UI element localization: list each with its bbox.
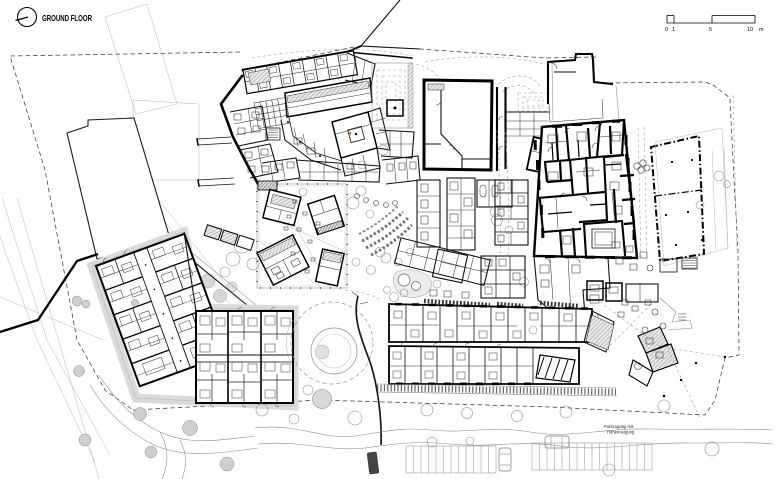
svg-text:10: 10 — [747, 27, 753, 33]
svg-text:Parkzugang mit: Parkzugang mit — [604, 424, 634, 429]
svg-text:Höhenneigung: Höhenneigung — [607, 430, 635, 435]
svg-text:5: 5 — [709, 27, 712, 33]
svg-text:m: m — [759, 27, 764, 33]
svg-text:0: 0 — [665, 27, 668, 33]
svg-text:1: 1 — [672, 27, 675, 33]
svg-text:GROUND FLOOR: GROUND FLOOR — [42, 13, 92, 23]
